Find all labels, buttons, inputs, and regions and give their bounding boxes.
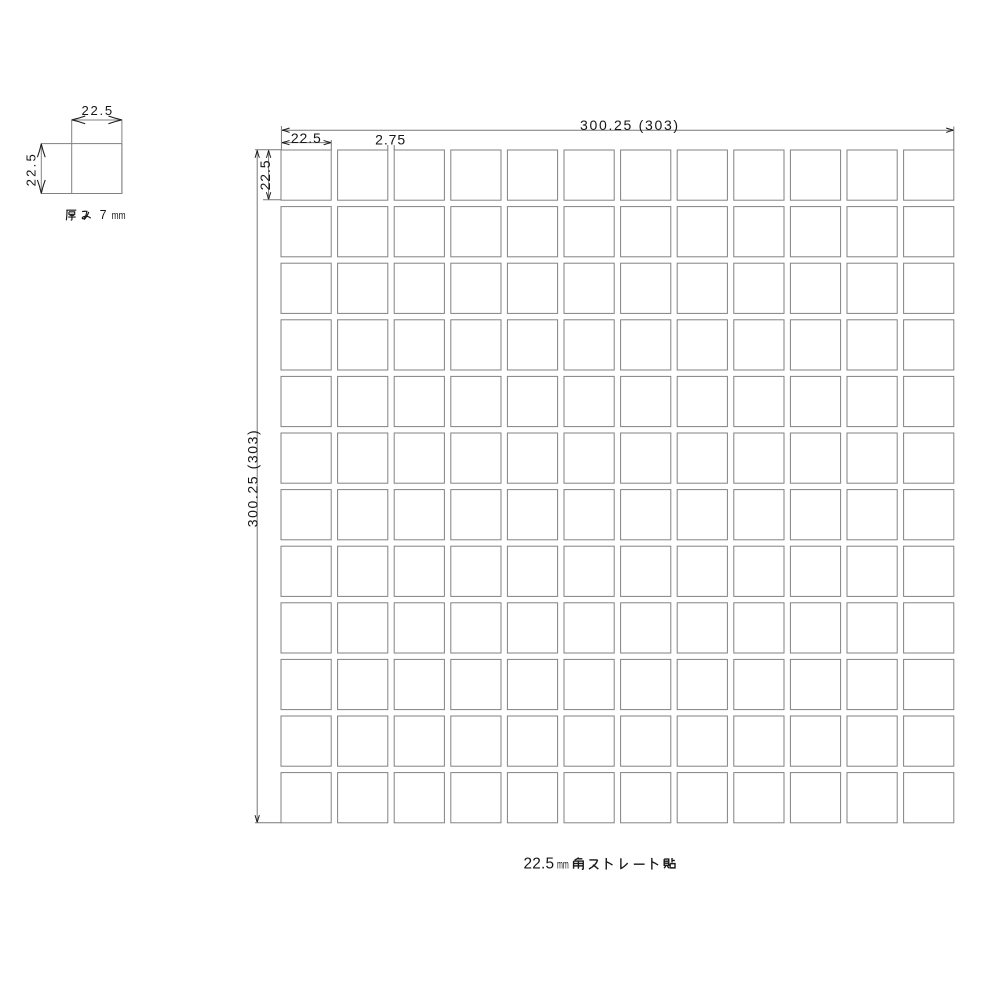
svg-text:22.5: 22.5 bbox=[24, 152, 39, 186]
svg-text:300.25 (303): 300.25 (303) bbox=[245, 429, 261, 528]
svg-text:22.5: 22.5 bbox=[257, 160, 273, 191]
svg-text:22.5: 22.5 bbox=[82, 103, 114, 118]
svg-text:mm: mm bbox=[557, 859, 569, 872]
svg-text:mm: mm bbox=[112, 210, 126, 222]
svg-text:2.75: 2.75 bbox=[375, 131, 406, 147]
svg-text:22.5: 22.5 bbox=[524, 856, 555, 873]
svg-text:7: 7 bbox=[100, 208, 107, 222]
svg-text:300.25 (303): 300.25 (303) bbox=[580, 117, 680, 133]
svg-text:22.5: 22.5 bbox=[291, 130, 322, 146]
